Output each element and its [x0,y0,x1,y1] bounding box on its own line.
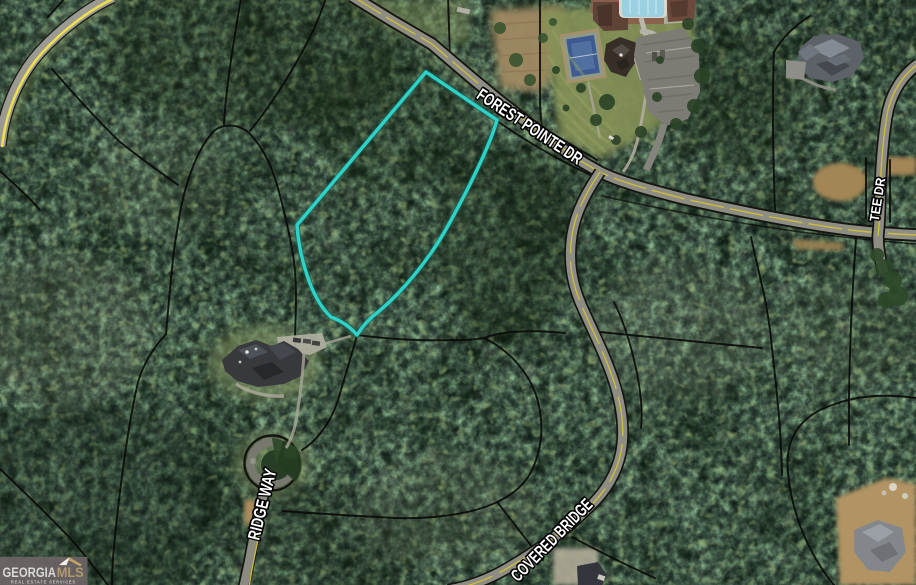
svg-text:GEORGIA: GEORGIA [3,565,57,580]
svg-text:MLS: MLS [57,565,84,580]
svg-text:REAL ESTATE SERVICES: REAL ESTATE SERVICES [11,579,76,584]
